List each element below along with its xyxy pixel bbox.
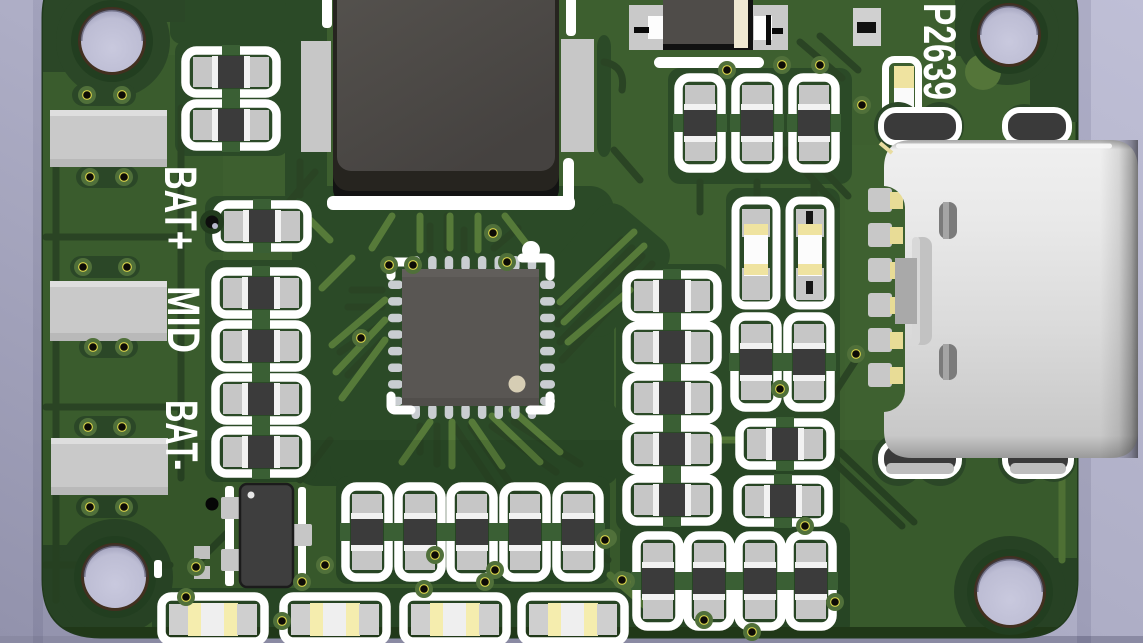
svg-text:MID: MID: [158, 286, 209, 353]
svg-text:BAT-: BAT-: [156, 400, 207, 470]
svg-text:BAT+: BAT+: [155, 166, 206, 250]
svg-text:P2639: P2639: [914, 3, 965, 100]
